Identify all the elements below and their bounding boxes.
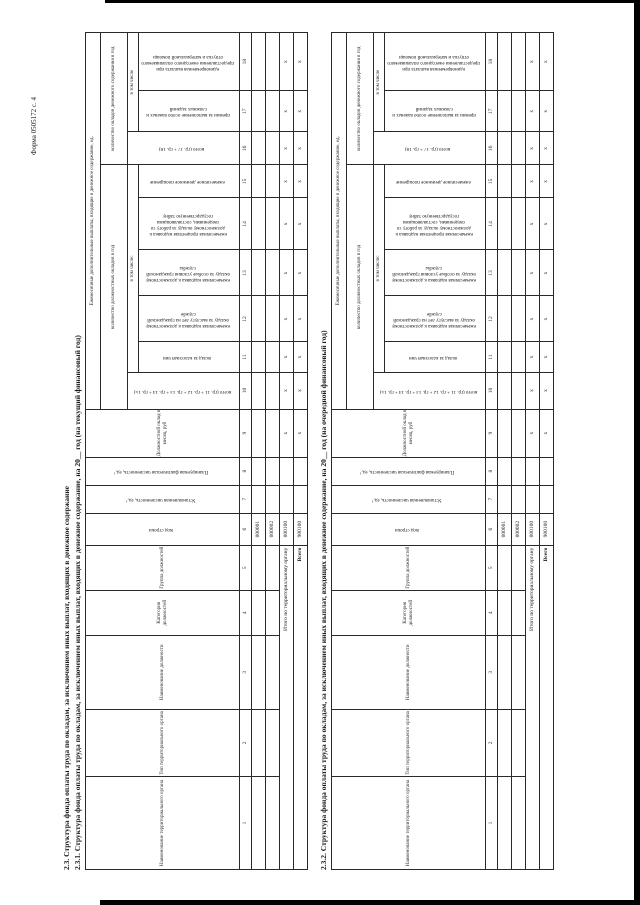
x-mark-cell: x <box>280 91 294 132</box>
col-number: 4 <box>240 590 252 635</box>
x-mark-cell: x <box>280 342 294 372</box>
empty-cell <box>252 342 266 372</box>
row-code-cell: 000100 <box>280 513 294 545</box>
header-col-18: единовременная выплата при предоставлени… <box>385 33 486 91</box>
x-mark-cell: x <box>294 296 308 342</box>
header-col-16-text: всего (гр. 17 + гр. 18) <box>405 145 450 151</box>
col-number: 6 <box>240 513 252 545</box>
empty-cell <box>512 485 526 513</box>
table-title: 2.3.1. Структура фонда оплаты труда по о… <box>73 32 82 870</box>
x-mark-cell: x <box>526 296 540 342</box>
empty-cell <box>512 709 526 776</box>
empty-cell <box>266 590 280 635</box>
empty-cell <box>266 635 280 709</box>
empty-cell <box>540 457 554 485</box>
x-mark-cell: x <box>526 250 540 296</box>
header-col-7: Установленная численность, ед.¹ <box>86 485 240 513</box>
header-col-8-text: Планируемая фактическая численность, ед.… <box>360 468 454 474</box>
header-col-11-text: оклад за классный чин <box>163 354 211 360</box>
header-col-1: Наименование территориального органа <box>332 776 486 869</box>
empty-cell <box>498 545 512 590</box>
header-col-14-text: ежемесячная процентная надбавка к должно… <box>386 212 482 236</box>
row-code-cell: 000001 <box>498 513 512 545</box>
header-col-14: ежемесячная процентная надбавка к должно… <box>385 198 486 250</box>
header-col-16-text: всего (гр. 17 + гр. 18) <box>159 145 204 151</box>
empty-cell <box>266 198 280 250</box>
x-mark-cell: x <box>280 132 294 165</box>
empty-cell <box>266 485 280 513</box>
header-col-10: всего (гр. 11 + гр. 12 + гр. 13 + гр. 14… <box>128 372 240 409</box>
empty-cell <box>252 545 266 590</box>
header-col-8: Планируемая фактическая численность, ед.… <box>332 457 486 485</box>
col-number: 5 <box>240 545 252 590</box>
empty-cell <box>252 776 266 869</box>
header-col-6: Код строки <box>332 513 486 545</box>
header-col-17: премии за выполнение особо важных и слож… <box>385 91 486 132</box>
empty-cell <box>266 91 280 132</box>
empty-cell <box>512 132 526 165</box>
col-number: 10 <box>240 372 252 409</box>
empty-cell <box>498 485 512 513</box>
x-mark-cell: x <box>540 165 554 198</box>
x-mark-cell: x <box>280 250 294 296</box>
empty-cell <box>512 250 526 296</box>
empty-cell <box>498 198 512 250</box>
header-col-10-text: всего (гр. 11 + гр. 12 + гр. 13 + гр. 14… <box>380 388 477 394</box>
empty-cell <box>512 457 526 485</box>
x-mark-cell: x <box>294 33 308 91</box>
header-col-1: Наименование территориального органа <box>86 776 240 869</box>
empty-cell <box>294 457 308 485</box>
empty-cell <box>512 776 526 869</box>
col-number: 2 <box>486 709 498 776</box>
empty-cell <box>498 165 512 198</box>
header-col-15: ежемесячное денежное поощрение <box>139 165 240 198</box>
header-col-15: ежемесячное денежное поощрение <box>385 165 486 198</box>
header-col-4: Категория должностей <box>332 590 486 635</box>
x-mark-cell: x <box>294 132 308 165</box>
empty-cell <box>266 372 280 409</box>
empty-cell <box>252 457 266 485</box>
x-mark-cell: x <box>540 33 554 91</box>
col-number: 14 <box>240 198 252 250</box>
header-including-2: в том числе <box>374 33 385 132</box>
x-mark-cell: x <box>540 342 554 372</box>
empty-cell <box>252 590 266 635</box>
header-including-1: в том числе: <box>374 165 385 372</box>
scanned-form-page: Форма 0505172 с. 4 2.3. Структура фонда … <box>0 0 640 905</box>
x-mark-cell: x <box>526 91 540 132</box>
header-col-2: Тип территориального органа <box>332 709 486 776</box>
empty-cell <box>252 198 266 250</box>
empty-cell <box>266 165 280 198</box>
col-number: 8 <box>240 457 252 485</box>
header-col-10-text: всего (гр. 11 + гр. 12 + гр. 13 + гр. 14… <box>134 388 231 394</box>
header-col-12-text: ежемесячная надбавка к должностному окла… <box>140 310 236 328</box>
empty-cell <box>266 457 280 485</box>
col-number: 11 <box>240 342 252 372</box>
row-code-cell: 900100 <box>294 513 308 545</box>
header-col-7: Установленная численность, ед.¹ <box>332 485 486 513</box>
empty-cell <box>266 250 280 296</box>
header-col-6-text: Код строки <box>149 526 173 532</box>
header-col-3: Наименование должности <box>86 635 240 709</box>
empty-cell <box>498 91 512 132</box>
header-col-11: оклад за классный чин <box>139 342 240 372</box>
header-col-8: Планируемая фактическая численность, ед.… <box>86 457 240 485</box>
col-number: 9 <box>486 409 498 457</box>
col-number: 3 <box>486 635 498 709</box>
x-mark-cell: x <box>280 165 294 198</box>
empty-cell <box>252 91 266 132</box>
col-number: 10 <box>486 372 498 409</box>
header-col-17-text: премии за выполнение особо важных и слож… <box>140 105 236 117</box>
row-code-cell: 000002 <box>512 513 526 545</box>
landscape-sheet: Форма 0505172 с. 4 2.3. Структура фонда … <box>0 0 640 905</box>
header-col-12: ежемесячная надбавка к должностному окла… <box>385 296 486 342</box>
empty-cell <box>252 372 266 409</box>
header-col-15-text: ежемесячное денежное поощрение <box>150 178 225 184</box>
empty-cell <box>252 165 266 198</box>
col-number: 18 <box>240 33 252 91</box>
header-col-15-text: ежемесячное денежное поощрение <box>396 178 471 184</box>
header-col-4: Категория должностей <box>86 590 240 635</box>
header-col-12-text: ежемесячная надбавка к должностному окла… <box>386 310 482 328</box>
empty-cell <box>498 457 512 485</box>
header-col-6: Код строки <box>86 513 240 545</box>
empty-cell <box>252 296 266 342</box>
header-including-2: в том числе <box>128 33 139 132</box>
fot-table-block: 2.3.1. Структура фонда оплаты труда по о… <box>73 32 308 870</box>
x-mark-cell: x <box>294 198 308 250</box>
empty-cell <box>512 342 526 372</box>
header-col-7-text: Установленная численность, ед.¹ <box>372 496 442 502</box>
header-col-13: ежемесячная надбавка к должностному окла… <box>385 250 486 296</box>
header-group-salary-counts: количество должностных окладов в год <box>347 165 374 409</box>
scan-edge-bottom <box>100 900 640 905</box>
empty-cell <box>252 409 266 457</box>
col-number: 2 <box>240 709 252 776</box>
header-col-5: Группа должностей <box>86 545 240 590</box>
total-row-label: Всего <box>540 545 554 869</box>
empty-cell <box>498 372 512 409</box>
x-mark-cell: x <box>280 372 294 409</box>
empty-cell <box>252 709 266 776</box>
empty-cell <box>252 635 266 709</box>
x-mark-cell: x <box>526 372 540 409</box>
fot-structure-table: Наименование территориального органа Тип… <box>85 32 308 870</box>
col-number: 18 <box>486 33 498 91</box>
subtotal-row-label: Итого по территориальному органу <box>526 545 540 869</box>
x-mark-cell: x <box>540 409 554 457</box>
header-col-18-text: единовременная выплата при предоставлени… <box>140 53 236 71</box>
header-col-13: ежемесячная надбавка к должностному окла… <box>139 250 240 296</box>
empty-cell <box>498 33 512 91</box>
x-mark-cell: x <box>526 409 540 457</box>
fot-structure-table: Наименование территориального органа Тип… <box>331 32 554 870</box>
header-group-monthly-payments: Ежемесячные дополнительные выплаты, вход… <box>86 33 101 410</box>
header-col-17-text: премии за выполнение особо важных и слож… <box>386 105 482 117</box>
total-row-label: Всего <box>294 545 308 869</box>
empty-cell <box>512 198 526 250</box>
col-number: 1 <box>240 776 252 869</box>
col-number: 3 <box>240 635 252 709</box>
header-col-9: Должностной оклад в месяц, руб <box>86 409 240 457</box>
x-mark-cell: x <box>294 250 308 296</box>
empty-cell <box>266 342 280 372</box>
empty-cell <box>512 635 526 709</box>
col-number: 9 <box>240 409 252 457</box>
x-mark-cell: x <box>294 342 308 372</box>
empty-cell <box>512 545 526 590</box>
x-mark-cell: x <box>540 296 554 342</box>
row-code-cell: 000100 <box>526 513 540 545</box>
form-code: Форма 0505172 с. 4 <box>30 97 38 155</box>
empty-cell <box>540 485 554 513</box>
col-number: 13 <box>486 250 498 296</box>
empty-cell <box>266 132 280 165</box>
header-col-17: премии за выполнение особо важных и слож… <box>139 91 240 132</box>
col-number: 11 <box>486 342 498 372</box>
empty-cell <box>512 296 526 342</box>
header-col-10: всего (гр. 11 + гр. 12 + гр. 13 + гр. 14… <box>374 372 486 409</box>
row-code-cell: 000001 <box>252 513 266 545</box>
col-number: 12 <box>240 296 252 342</box>
x-mark-cell: x <box>280 296 294 342</box>
header-col-11: оклад за классный чин <box>385 342 486 372</box>
empty-cell <box>252 250 266 296</box>
empty-cell <box>266 776 280 869</box>
empty-cell <box>294 485 308 513</box>
header-col-5: Группа должностей <box>332 545 486 590</box>
x-mark-cell: x <box>540 198 554 250</box>
x-mark-cell: x <box>526 165 540 198</box>
x-mark-cell: x <box>526 132 540 165</box>
header-group-salary-counts: количество должностных окладов в год <box>101 165 128 409</box>
col-number: 16 <box>240 132 252 165</box>
header-group-monthly-payments: Ежемесячные дополнительные выплаты, вход… <box>332 33 347 410</box>
empty-cell <box>512 33 526 91</box>
empty-cell <box>512 590 526 635</box>
empty-cell <box>498 590 512 635</box>
header-col-2: Тип территориального органа <box>86 709 240 776</box>
x-mark-cell: x <box>294 91 308 132</box>
x-mark-cell: x <box>526 198 540 250</box>
x-mark-cell: x <box>294 165 308 198</box>
empty-cell <box>512 409 526 457</box>
x-mark-cell: x <box>294 372 308 409</box>
header-col-13-text: ежемесячная надбавка к должностному окла… <box>140 264 236 282</box>
x-mark-cell: x <box>280 409 294 457</box>
table-title: 2.3.2. Структура фонда оплаты труда по о… <box>319 32 328 870</box>
empty-cell <box>252 485 266 513</box>
fot-table-block: 2.3.2. Структура фонда оплаты труда по о… <box>319 32 554 870</box>
empty-cell <box>252 33 266 91</box>
empty-cell <box>512 165 526 198</box>
header-col-14-text: ежемесячная процентная надбавка к должно… <box>140 212 236 236</box>
x-mark-cell: x <box>526 33 540 91</box>
col-number: 7 <box>486 485 498 513</box>
header-col-7-text: Установленная численность, ед.¹ <box>126 496 196 502</box>
header-col-9: Должностной оклад в месяц, руб <box>332 409 486 457</box>
x-mark-cell: x <box>526 342 540 372</box>
empty-cell <box>498 776 512 869</box>
col-number: 12 <box>486 296 498 342</box>
empty-cell <box>512 91 526 132</box>
x-mark-cell: x <box>294 409 308 457</box>
header-col-16: всего (гр. 17 + гр. 18) <box>374 132 486 165</box>
header-col-18: единовременная выплата при предоставлени… <box>139 33 240 91</box>
header-col-16: всего (гр. 17 + гр. 18) <box>128 132 240 165</box>
subtotal-row-label: Итого по территориальному органу <box>280 545 294 869</box>
section-title: 2.3. Структура фонда оплаты труда по окл… <box>62 32 71 870</box>
col-number: 13 <box>240 250 252 296</box>
col-number: 6 <box>486 513 498 545</box>
x-mark-cell: x <box>280 198 294 250</box>
header-col-18-text: единовременная выплата при предоставлени… <box>386 53 482 71</box>
x-mark-cell: x <box>540 372 554 409</box>
form-content: 2.3. Структура фонда оплаты труда по окл… <box>62 32 554 870</box>
header-including-1: в том числе: <box>128 165 139 372</box>
header-col-6-text: Код строки <box>395 526 419 532</box>
col-number: 16 <box>486 132 498 165</box>
empty-cell <box>498 250 512 296</box>
header-col-12: ежемесячная надбавка к должностному окла… <box>139 296 240 342</box>
row-code-cell: 900100 <box>540 513 554 545</box>
empty-cell <box>498 709 512 776</box>
empty-cell <box>266 545 280 590</box>
x-mark-cell: x <box>280 33 294 91</box>
header-group-money-content-counts: количество окладов денежного содержания … <box>101 33 128 165</box>
row-code-cell: 000002 <box>266 513 280 545</box>
empty-cell <box>526 485 540 513</box>
scan-edge-right <box>634 0 640 905</box>
empty-cell <box>266 709 280 776</box>
empty-cell <box>252 132 266 165</box>
empty-cell <box>266 409 280 457</box>
col-number: 5 <box>486 545 498 590</box>
header-col-3: Наименование должности <box>332 635 486 709</box>
col-number: 15 <box>486 165 498 198</box>
empty-cell <box>280 457 294 485</box>
empty-cell <box>498 409 512 457</box>
header-col-14: ежемесячная процентная надбавка к должно… <box>139 198 240 250</box>
col-number: 4 <box>486 590 498 635</box>
header-col-8-text: Планируемая фактическая численность, ед.… <box>114 468 208 474</box>
x-mark-cell: x <box>540 132 554 165</box>
col-number: 1 <box>486 776 498 869</box>
col-number: 8 <box>486 457 498 485</box>
empty-cell <box>498 132 512 165</box>
header-col-11-text: оклад за классный чин <box>409 354 457 360</box>
empty-cell <box>498 296 512 342</box>
x-mark-cell: x <box>540 91 554 132</box>
empty-cell <box>526 457 540 485</box>
empty-cell <box>266 33 280 91</box>
header-col-13-text: ежемесячная надбавка к должностному окла… <box>386 264 482 282</box>
col-number: 17 <box>240 91 252 132</box>
empty-cell <box>498 342 512 372</box>
col-number: 17 <box>486 91 498 132</box>
col-number: 14 <box>486 198 498 250</box>
empty-cell <box>266 296 280 342</box>
header-group-money-content-counts: количество окладов денежного содержания … <box>347 33 374 165</box>
col-number: 15 <box>240 165 252 198</box>
empty-cell <box>512 372 526 409</box>
x-mark-cell: x <box>540 250 554 296</box>
scan-edge-top <box>105 0 640 3</box>
empty-cell <box>498 635 512 709</box>
col-number: 7 <box>240 485 252 513</box>
empty-cell <box>280 485 294 513</box>
